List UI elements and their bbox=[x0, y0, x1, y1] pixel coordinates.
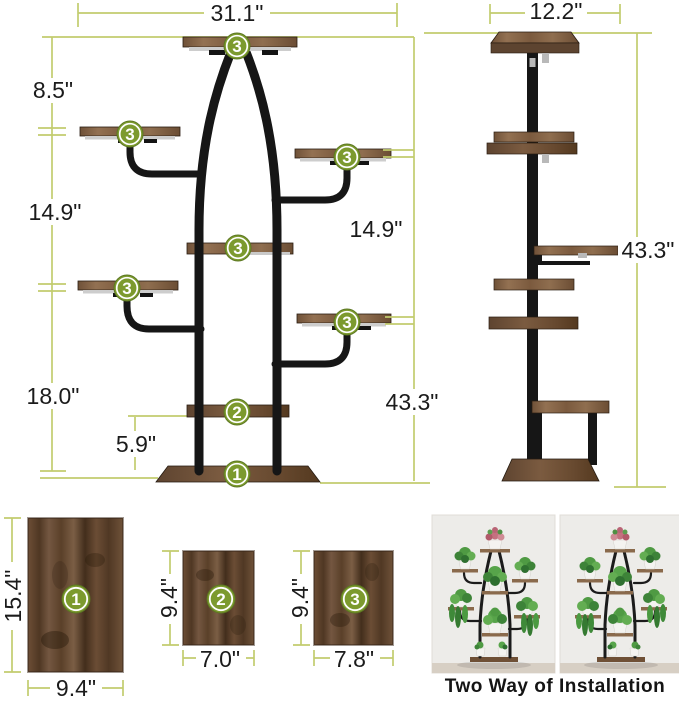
dim-board1-height: 15.4" bbox=[0, 570, 26, 623]
badge-board-1: 1 bbox=[62, 585, 90, 613]
installation-photo-2 bbox=[560, 515, 679, 673]
dim-side-total-height: 43.3" bbox=[622, 237, 675, 263]
dim-front-seg-left-mid: 14.9" bbox=[29, 199, 82, 225]
side-flat-shelf bbox=[534, 246, 618, 263]
installation-photo-1 bbox=[432, 515, 555, 673]
badge-middle-shelf-3: 3 bbox=[225, 235, 251, 261]
dim-front-shelf2-base: 5.9" bbox=[116, 431, 156, 457]
side-small-shelf-2 bbox=[489, 317, 578, 329]
svg-text:3: 3 bbox=[350, 590, 359, 609]
dim-board3-width: 7.8" bbox=[334, 646, 374, 672]
side-small-shelf-1 bbox=[494, 279, 574, 290]
side-view-stand bbox=[487, 32, 618, 481]
svg-text:1: 1 bbox=[71, 590, 80, 609]
installation-caption: Two Way of Installation bbox=[430, 676, 679, 698]
plant-stand-dimension-diagram: 31.1" 8.5" 14.9" 18.0" 5.9" 14.9" 43.3" … bbox=[0, 0, 679, 701]
dim-side-depth: 12.2" bbox=[530, 0, 583, 24]
side-base bbox=[502, 459, 599, 481]
dim-board3-height: 9.4" bbox=[287, 578, 313, 618]
svg-text:2: 2 bbox=[232, 403, 241, 422]
dim-board2-height: 9.4" bbox=[156, 578, 182, 618]
dim-board1-width: 9.4" bbox=[56, 675, 96, 701]
dim-front-width: 31.1" bbox=[211, 0, 264, 26]
badge-base-1: 1 bbox=[224, 461, 250, 487]
svg-text:3: 3 bbox=[342, 313, 351, 332]
dim-front-seg-left-bottom: 18.0" bbox=[27, 383, 80, 409]
badge-upper-left-3: 3 bbox=[117, 121, 143, 147]
extension-lines bbox=[40, 33, 666, 487]
svg-text:2: 2 bbox=[216, 590, 225, 609]
dim-front-seg-right-mid: 14.9" bbox=[350, 216, 403, 242]
badge-upper-right-3: 3 bbox=[334, 144, 360, 170]
dim-front-total-height: 43.3" bbox=[386, 389, 439, 415]
badge-board-2: 2 bbox=[207, 585, 235, 613]
svg-text:3: 3 bbox=[233, 239, 242, 258]
side-shelf-2 bbox=[532, 401, 609, 465]
badge-lower-right-3: 3 bbox=[334, 309, 360, 335]
dim-board2-width: 7.0" bbox=[200, 646, 240, 672]
svg-text:3: 3 bbox=[342, 148, 351, 167]
svg-text:3: 3 bbox=[122, 279, 131, 298]
badge-lower-left-3: 3 bbox=[114, 275, 140, 301]
badge-board-3: 3 bbox=[341, 585, 369, 613]
diagram-canvas: 31.1" 8.5" 14.9" 18.0" 5.9" 14.9" 43.3" … bbox=[0, 0, 679, 701]
dim-front-seg-top: 8.5" bbox=[33, 77, 73, 103]
svg-text:1: 1 bbox=[232, 465, 241, 484]
svg-text:3: 3 bbox=[125, 125, 134, 144]
badge-shelf-2: 2 bbox=[224, 399, 250, 425]
badge-top-shelf-3: 3 bbox=[224, 33, 250, 59]
photo-shadow bbox=[457, 661, 531, 669]
svg-text:3: 3 bbox=[232, 37, 241, 56]
pole-screw bbox=[530, 58, 536, 67]
